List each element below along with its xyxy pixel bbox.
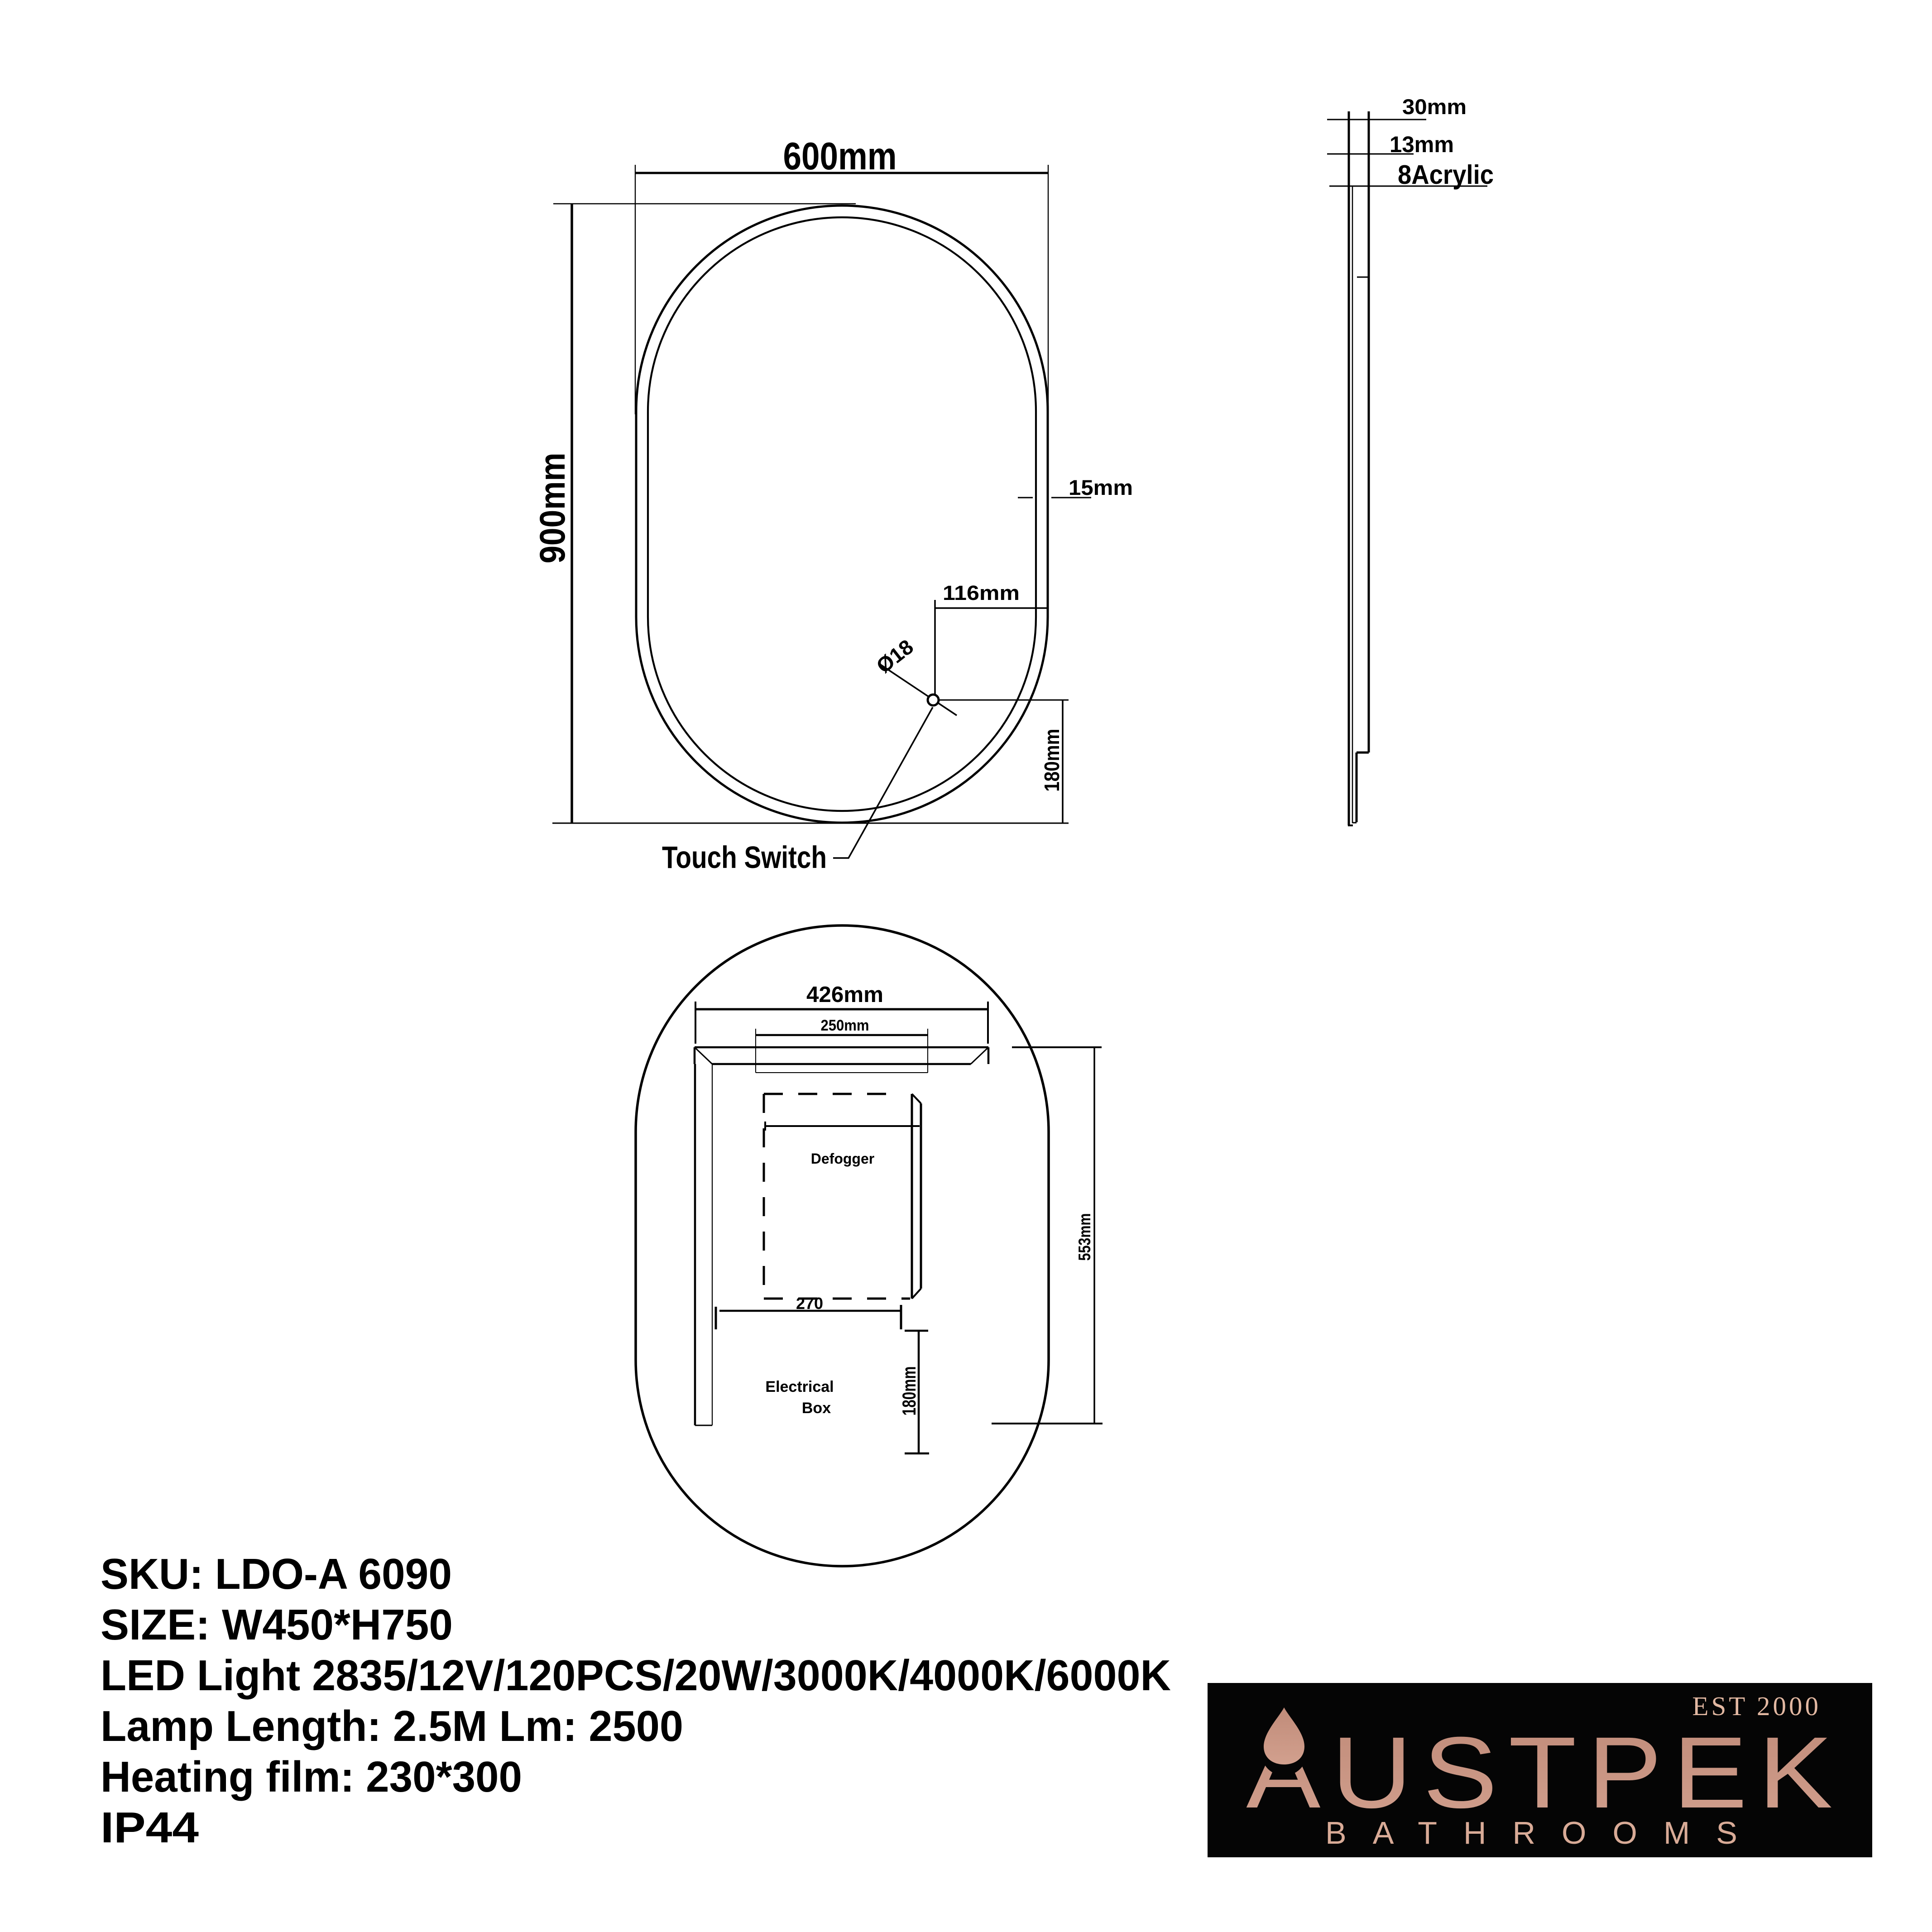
svg-text:116mm: 116mm bbox=[943, 581, 1020, 604]
svg-text:426mm: 426mm bbox=[806, 983, 883, 1007]
svg-text:180mm: 180mm bbox=[1040, 729, 1064, 792]
svg-text:IP44: IP44 bbox=[101, 1803, 199, 1852]
svg-text:Heating film: 230*300: Heating film: 230*300 bbox=[101, 1753, 522, 1801]
svg-text:LED Light 2835/12V/120PCS/20W/: LED Light 2835/12V/120PCS/20W/3000K/4000… bbox=[101, 1651, 1171, 1700]
svg-text:Lamp Length: 2.5M Lm: 2500: Lamp Length: 2.5M Lm: 2500 bbox=[101, 1702, 683, 1750]
svg-text:Box: Box bbox=[802, 1400, 831, 1417]
svg-text:SIZE: W450*H750: SIZE: W450*H750 bbox=[101, 1601, 453, 1649]
svg-text:180mm: 180mm bbox=[898, 1366, 920, 1416]
svg-text:30mm: 30mm bbox=[1402, 95, 1467, 119]
svg-text:600mm: 600mm bbox=[783, 135, 897, 178]
svg-text:Touch Switch: Touch Switch bbox=[662, 840, 827, 875]
svg-text:900mm: 900mm bbox=[532, 453, 572, 564]
svg-text:Defogger: Defogger bbox=[811, 1151, 874, 1167]
svg-text:8Acrylic: 8Acrylic bbox=[1398, 160, 1494, 190]
svg-text:SKU: LDO-A 6090: SKU: LDO-A 6090 bbox=[101, 1550, 452, 1598]
svg-text:15mm: 15mm bbox=[1069, 475, 1133, 499]
svg-text:250mm: 250mm bbox=[821, 1017, 869, 1034]
svg-text:Electrical: Electrical bbox=[765, 1378, 834, 1395]
svg-text:AUSTPEK: AUSTPEK bbox=[1246, 1716, 1844, 1829]
svg-text:13mm: 13mm bbox=[1390, 132, 1454, 157]
svg-text:BATHROOMS: BATHROOMS bbox=[1325, 1815, 1764, 1851]
svg-text:553mm: 553mm bbox=[1075, 1213, 1094, 1261]
